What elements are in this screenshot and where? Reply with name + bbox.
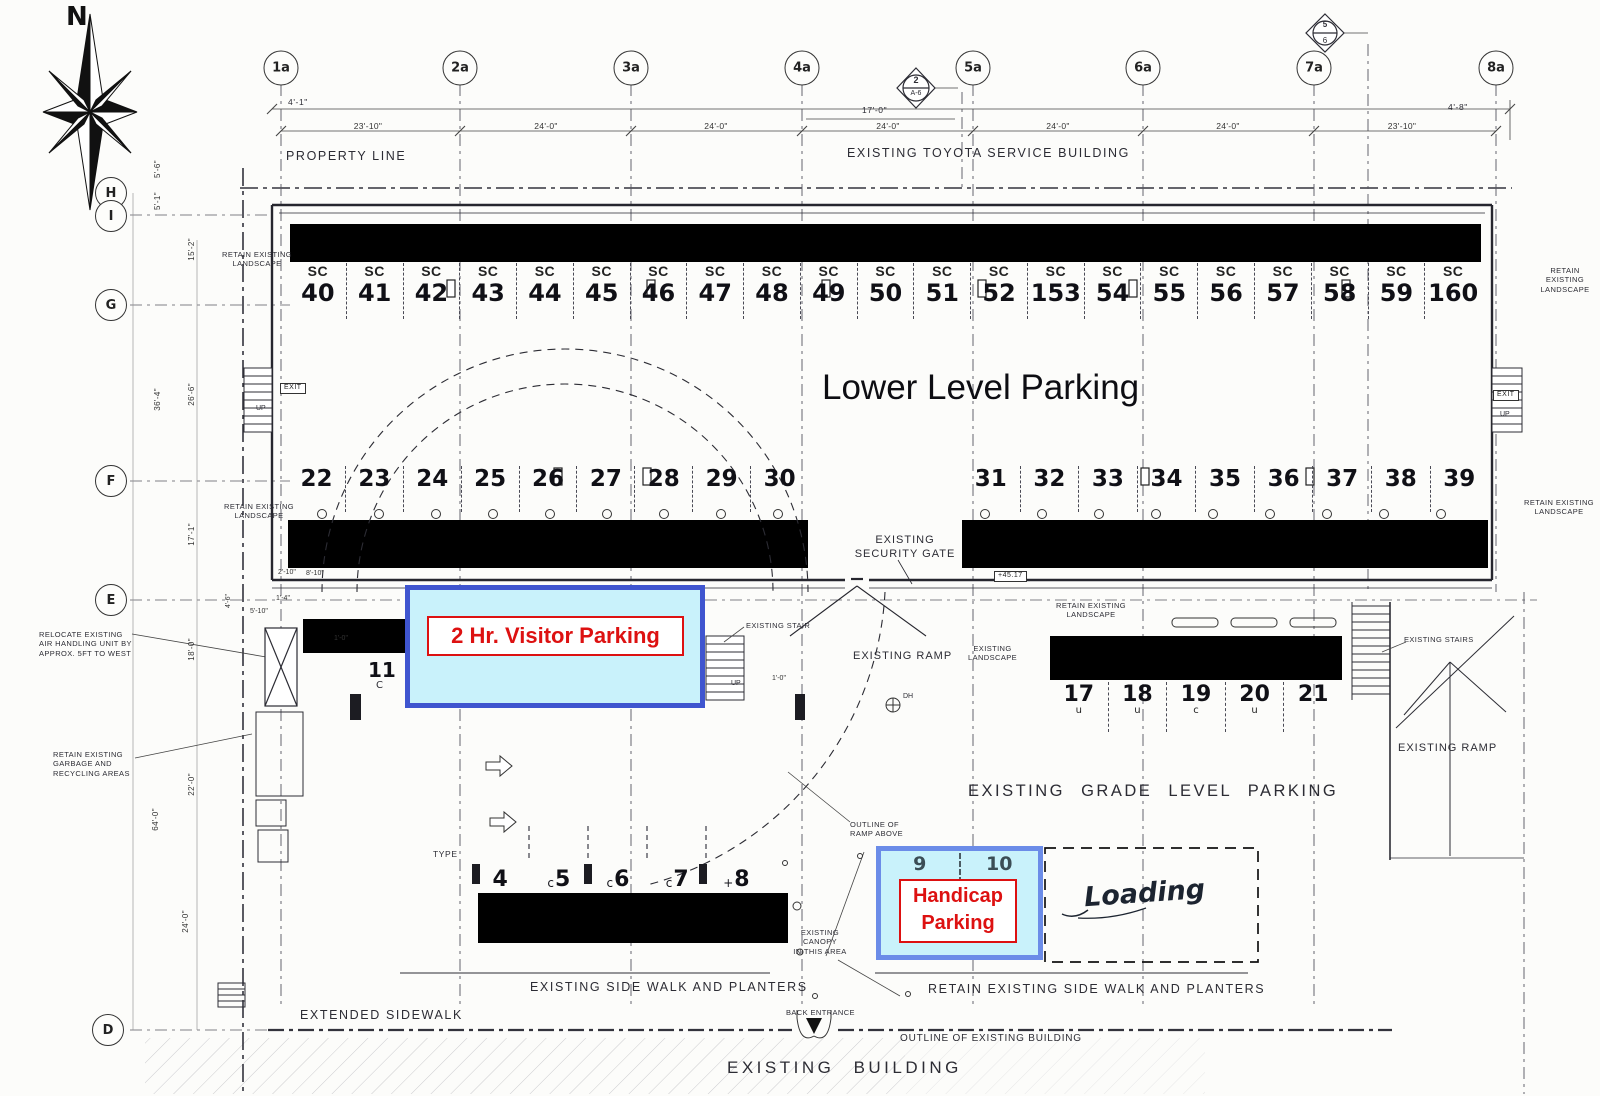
stall-number: 36: [1268, 466, 1300, 492]
stall-cell: 20 u: [1225, 682, 1284, 732]
retain-landscape-label: RETAIN EXISTING LANDSCAPE: [1530, 266, 1600, 294]
stall-number: 30: [764, 466, 796, 492]
detail-marker-number: 2: [913, 75, 918, 86]
stall-cell: 21: [1283, 682, 1342, 732]
retain-landscape-label: RETAIN EXISTING LANDSCAPE: [222, 250, 292, 269]
stall-number: 37: [1326, 466, 1358, 492]
stall-cell: SC 41: [346, 263, 403, 319]
dim-4-1: 4'-1": [288, 97, 308, 108]
stall-number: 56: [1209, 279, 1242, 307]
stall-cell: 33: [1078, 466, 1137, 512]
stall-row-mid-left: 22 23 24 25 26 27 28 29 30: [288, 466, 808, 512]
retain-landscape-label: RETAIN EXISTING LANDSCAPE: [224, 502, 294, 521]
drain-label: DH: [903, 693, 913, 702]
stall-cell: SC 49: [800, 263, 857, 319]
stall-cell: SC 42: [403, 263, 460, 319]
stall-number: 25: [474, 466, 506, 492]
dimension-label: 18'-0": [187, 638, 196, 661]
handicap-parking-label: Handicap Parking: [899, 879, 1017, 943]
up-label: UP: [1500, 411, 1510, 420]
stall-cell: SC 58: [1311, 263, 1368, 319]
stall-cell: SC 153: [1027, 263, 1084, 319]
stall-cell: SC 40: [290, 263, 346, 319]
stall-cell: SC 57: [1254, 263, 1311, 319]
security-gate-label: EXISTING SECURITY GATE: [845, 534, 965, 562]
retain-landscape-label: RETAIN EXISTING LANDSCAPE: [1056, 601, 1126, 620]
stall-cell: 17 u: [1050, 682, 1108, 732]
back-entrance-label: BACK ENTRANCE: [786, 1008, 855, 1017]
grid-bubble: 6a: [1126, 51, 1161, 86]
dimension-label: 24'-0": [704, 121, 727, 131]
stall-number: 23: [358, 466, 390, 492]
stall-cell: 22: [288, 466, 345, 512]
stall-number: 54: [1096, 279, 1129, 307]
stall-number: 17: [1063, 682, 1094, 707]
stall-number: 6: [614, 867, 629, 892]
stall-number: 58: [1323, 279, 1356, 307]
toyota-building-label: EXISTING TOYOTA SERVICE BUILDING: [847, 146, 1130, 162]
stall-number: 40: [301, 279, 334, 307]
handicap-label-line1: Handicap: [901, 883, 1015, 910]
stall-prefix: c: [666, 876, 673, 890]
grid-bubble: 4a: [785, 51, 820, 86]
stall-number: 31: [975, 466, 1007, 492]
stall-type-label: SC: [478, 263, 498, 279]
stall-type-label: SC: [1216, 263, 1236, 279]
stall-type-label: SC: [1046, 263, 1066, 279]
north-label: N: [66, 2, 88, 32]
stall-number: 43: [471, 279, 504, 307]
stall-sub-mark: c: [1193, 705, 1199, 716]
garbage-recycling-note: RETAIN EXISTING GARBAGE AND RECYCLING AR…: [53, 750, 130, 778]
dimension-label: 4'-6": [225, 594, 232, 608]
stall-type-label: SC: [591, 263, 611, 279]
stall-cell: 39: [1430, 466, 1489, 512]
stall-cell: SC 56: [1197, 263, 1254, 319]
grid-bubble: 8a: [1479, 51, 1514, 86]
dimension-label: 17'-1": [187, 523, 196, 546]
relocate-ahu-note: RELOCATE EXISTING AIR HANDLING UNIT BY A…: [39, 630, 132, 658]
stall-cell: 19 c: [1166, 682, 1225, 732]
stall-cell: 30: [750, 466, 808, 512]
retain-sidewalk-label: RETAIN EXISTING SIDE WALK AND PLANTERS: [928, 982, 1265, 998]
stall-type-label: SC: [705, 263, 725, 279]
stall-type-label: SC: [1102, 263, 1122, 279]
stall-cell: 34: [1137, 466, 1196, 512]
stall-cell: 32: [1020, 466, 1079, 512]
stall-number: 51: [926, 279, 959, 307]
stall-11-sub-mark: C: [376, 680, 383, 693]
stall-cell: 37: [1312, 466, 1371, 512]
handicap-parking-zone: 9 10 Handicap Parking: [876, 846, 1043, 960]
dim-17-0: 17'-0": [862, 105, 887, 116]
stall-cell: SC 55: [1140, 263, 1197, 319]
stall-cell: 28: [634, 466, 692, 512]
stall-cell: 36: [1254, 466, 1313, 512]
stall-number: 19: [1181, 682, 1212, 707]
dimension-label: 2'-10": [278, 569, 296, 576]
dimension-label: 5'-10": [250, 608, 268, 615]
stall-cell: 25: [461, 466, 519, 512]
stall-type-label: SC: [932, 263, 952, 279]
stall-type-label: SC: [1386, 263, 1406, 279]
planter-pills: [1172, 618, 1336, 627]
detail-marker-number: 5: [1323, 20, 1327, 30]
grid-bubble: 2a: [443, 51, 478, 86]
parking-plan-drawing: N 1a2a3a4a5a6a7a8a HIGFED PROPERTY LINE …: [0, 0, 1600, 1096]
grid-bubble: 7a: [1297, 51, 1332, 86]
stall-number: 18: [1122, 682, 1153, 707]
stall-cell: 38: [1371, 466, 1430, 512]
stall-cell: SC 44: [516, 263, 573, 319]
property-line-label: PROPERTY LINE: [286, 149, 406, 165]
stall-cell: c 7: [648, 856, 707, 892]
north-compass-icon: [43, 14, 137, 210]
stall-type-label: SC: [648, 263, 668, 279]
stall-cell: 18 u: [1108, 682, 1167, 732]
ramp-right-label: EXISTING RAMP: [1398, 742, 1497, 756]
stall-number: 46: [642, 279, 675, 307]
stall-cell: 23: [345, 466, 403, 512]
stall-type-label: SC: [1159, 263, 1179, 279]
stall-type-label: SC: [308, 263, 328, 279]
stall-number: 41: [358, 279, 391, 307]
type-label: TYPE: [433, 849, 458, 860]
stall-cell: SC 47: [686, 263, 743, 319]
stall-number: 42: [415, 279, 448, 307]
stall-type-label: SC: [1329, 263, 1349, 279]
lower-level-parking-title: Lower Level Parking: [822, 368, 1139, 408]
stall-number: 26: [532, 466, 564, 492]
stall-cell: 35: [1195, 466, 1254, 512]
dimension-label: 8'-10": [306, 570, 324, 577]
stall-cell: SC 46: [630, 263, 687, 319]
drain-symbol: [886, 698, 900, 712]
dimension-label: 5'-1": [153, 192, 162, 210]
sidewalk-planters-label: EXISTING SIDE WALK AND PLANTERS: [530, 980, 808, 996]
stall-number: 27: [590, 466, 622, 492]
existing-landscape-label: EXISTING LANDSCAPE: [968, 644, 1017, 663]
stall-number: 39: [1443, 466, 1475, 492]
grade-level-parking-title: EXISTING GRADE LEVEL PARKING: [968, 782, 1338, 801]
stall-number: 21: [1298, 682, 1329, 707]
stall-type-label: SC: [875, 263, 895, 279]
stall-cell: SC 48: [743, 263, 800, 319]
stairs-right-label: EXISTING STAIRS: [1404, 635, 1474, 644]
stall-number: 4: [492, 867, 507, 892]
stall-cell: SC 59: [1368, 263, 1425, 319]
dimension-label: 5'-6": [153, 160, 162, 178]
stall-cell: SC 52: [970, 263, 1027, 319]
extended-sidewalk-label: EXTENDED SIDEWALK: [300, 1008, 463, 1024]
stall-sub-mark: u: [1251, 705, 1257, 716]
air-handling-unit: [265, 628, 297, 706]
stall-type-label: SC: [364, 263, 384, 279]
stall-type-label: SC: [1443, 263, 1463, 279]
direction-arrows: [486, 756, 516, 832]
stall-number: 153: [1031, 279, 1081, 307]
stall-number: 9: [913, 853, 926, 875]
canopy-note: EXISTING CANOPY IN THIS AREA: [788, 928, 852, 956]
dimension-label: 1'-4": [276, 595, 290, 602]
dim-4-8: 4'-8": [1448, 102, 1468, 113]
stall-number: 5: [555, 867, 570, 892]
stall-cell: SC 160: [1424, 263, 1481, 319]
stall-number: 20: [1239, 682, 1270, 707]
stall-cell: 4: [470, 856, 529, 892]
stall-number: 38: [1385, 466, 1417, 492]
stall-number: 44: [528, 279, 561, 307]
stall-type-label: SC: [762, 263, 782, 279]
grid-bubble: E: [95, 584, 127, 616]
dimension-label: 1'-0": [334, 635, 348, 642]
stall-type-label: SC: [535, 263, 555, 279]
stall-cell: 29: [692, 466, 750, 512]
up-label: UP: [256, 405, 266, 414]
stair-center-label: EXISTING STAIR: [746, 621, 810, 630]
stall-sub-mark: u: [1134, 705, 1140, 716]
stall-number: 45: [585, 279, 618, 307]
stall-type-label: SC: [989, 263, 1009, 279]
stall-cell: + 8: [707, 856, 766, 892]
detail-marker-sheet: A-6: [911, 90, 922, 99]
dimension-label: 22'-0": [187, 773, 196, 796]
stall-number: 160: [1428, 279, 1478, 307]
existing-building-title: EXISTING BUILDING: [727, 1058, 962, 1078]
stall-prefix: c: [607, 876, 614, 890]
dimension-label: 26'-6": [187, 383, 196, 406]
dimension-label: 24'-0": [876, 121, 899, 131]
stall-cell: SC 45: [573, 263, 630, 319]
leader-lines: [132, 33, 1406, 996]
stall-number: 47: [699, 279, 732, 307]
stall-number: 49: [812, 279, 845, 307]
up-label: UP: [731, 680, 741, 689]
stall-number: 24: [416, 466, 448, 492]
stall-cell: 26: [519, 466, 577, 512]
grid-bubble: F: [95, 465, 127, 497]
stall-number: 22: [300, 466, 332, 492]
stall-cell: c 5: [529, 856, 588, 892]
dimension-label: 24'-0": [1216, 121, 1239, 131]
dimension-label: 24'-0": [1046, 121, 1069, 131]
stall-number: 59: [1380, 279, 1413, 307]
stall-cell: 24: [403, 466, 461, 512]
stall-type-label: SC: [819, 263, 839, 279]
stall-number: 35: [1209, 466, 1241, 492]
stall-dash-extensions: [529, 826, 706, 858]
stall-number: 55: [1153, 279, 1186, 307]
stall-number: 57: [1266, 279, 1299, 307]
stall-cell: 31: [962, 466, 1020, 512]
right-ramp-lines: [1390, 616, 1524, 858]
stall-number: 28: [648, 466, 680, 492]
outline-ramp-label: OUTLINE OF RAMP ABOVE: [850, 820, 903, 839]
stall-number: 52: [982, 279, 1015, 307]
stall-cell: 27: [576, 466, 634, 512]
stall-number: 48: [755, 279, 788, 307]
ramp-center-label: EXISTING RAMP: [853, 650, 952, 664]
dimension-lines: [267, 100, 1515, 140]
retain-landscape-label: RETAIN EXISTING LANDSCAPE: [1524, 498, 1594, 517]
stall-cell: SC 54: [1084, 263, 1141, 319]
dimension-label: 36'-4": [153, 388, 162, 411]
stall-prefix: +: [723, 876, 733, 890]
garbage-recycling-area: [218, 712, 303, 1007]
stall-number: 10: [986, 853, 1012, 875]
stall-row-bottom: 4 c 5 c 6 c 7 + 8: [470, 856, 766, 892]
handicap-label-line2: Parking: [901, 910, 1015, 937]
stall-cell: SC 51: [913, 263, 970, 319]
stall-number: 50: [869, 279, 902, 307]
stall-cell: SC 50: [857, 263, 914, 319]
stall-cell: SC 43: [459, 263, 516, 319]
dimension-label: 15'-2": [187, 238, 196, 261]
dimension-label: 24'-0": [181, 910, 190, 933]
stall-row-grade: 17 u 18 u 19 c 20 u 21: [1050, 682, 1342, 732]
stall-number: 32: [1033, 466, 1065, 492]
visitor-parking-zone: 2 Hr. Visitor Parking: [405, 585, 705, 708]
exit-label: EXIT: [280, 383, 306, 394]
dimension-label: 23'-10": [1388, 121, 1416, 131]
dimension-label: 1'-0": [772, 675, 786, 682]
dimension-label: 64'-0": [151, 808, 160, 831]
stall-cell: c 6: [588, 856, 647, 892]
grid-bubble: D: [92, 1014, 124, 1046]
stall-sub-mark: u: [1076, 705, 1082, 716]
stall-type-label: SC: [421, 263, 441, 279]
stall-number: 7: [673, 867, 688, 892]
outline-building-label: OUTLINE OF EXISTING BUILDING: [900, 1033, 1082, 1046]
detail-marker-sheet: 6: [1323, 36, 1327, 46]
grid-bubble: G: [95, 289, 127, 321]
visitor-parking-label: 2 Hr. Visitor Parking: [427, 616, 684, 656]
grid-bubble: 3a: [614, 51, 649, 86]
grid-bubble: I: [95, 200, 127, 232]
stall-number: 29: [706, 466, 738, 492]
stall-prefix: c: [547, 876, 554, 890]
stall-row-mid-right: 31 32 33 34 35 36 37 38 39: [962, 466, 1488, 512]
grid-bubble: 1a: [264, 51, 299, 86]
stall-number: 34: [1150, 466, 1182, 492]
stall-number: 33: [1092, 466, 1124, 492]
elevation-label: +45.17: [994, 571, 1027, 582]
exit-label: EXIT: [1493, 390, 1519, 401]
dimension-label: 24'-0": [534, 121, 557, 131]
stall-row-top: SC 40 SC 41 SC 42 SC 43 SC 44 SC 45 SC 4…: [290, 263, 1481, 319]
dimension-label: 23'-10": [354, 121, 382, 131]
security-gate-lines: [790, 560, 926, 636]
grid-bubble: 5a: [956, 51, 991, 86]
stall-number: 8: [734, 867, 749, 892]
stall-type-label: SC: [1273, 263, 1293, 279]
